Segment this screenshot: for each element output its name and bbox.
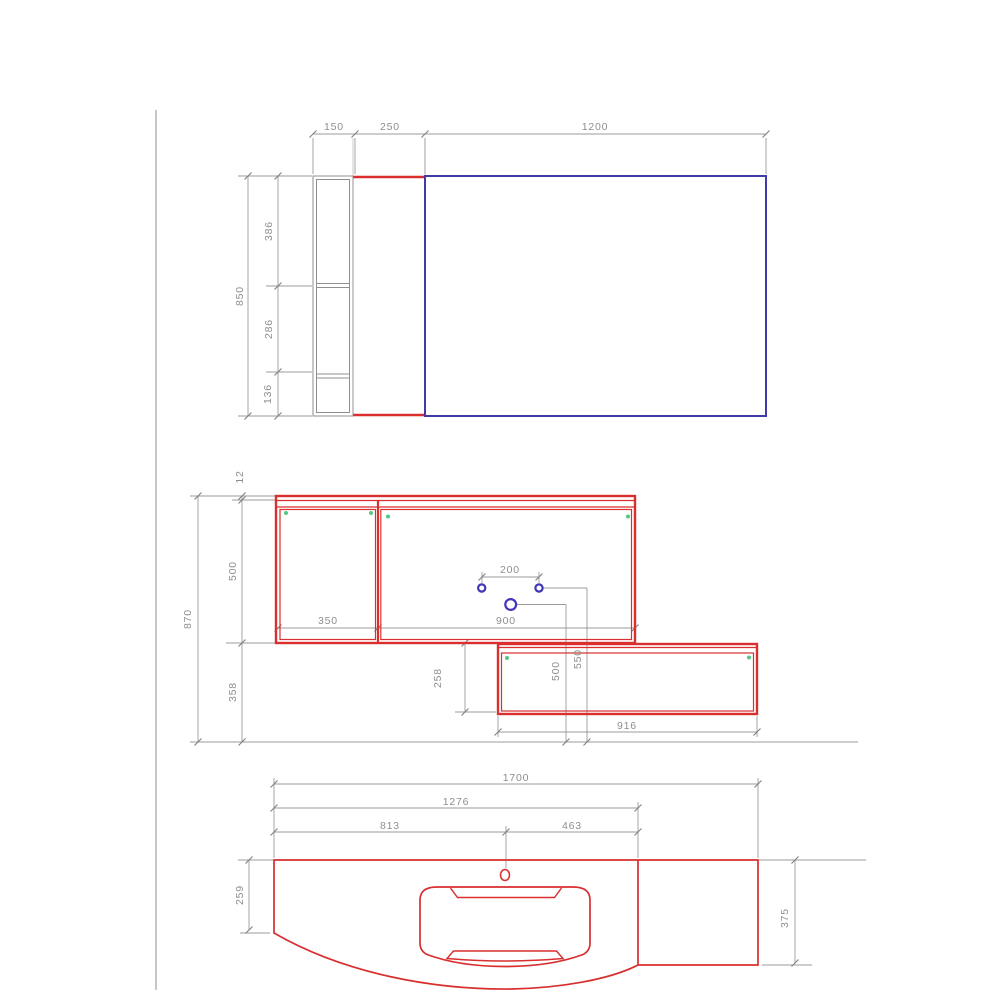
- tap-hole-small-right: [535, 584, 542, 591]
- front-lower-cabinet-outline: [498, 644, 757, 714]
- dim-label-258: 258: [432, 668, 444, 688]
- hinge-dot: [369, 511, 373, 515]
- plan-mid-panel-extensions: [353, 138, 425, 416]
- dim-label-358: 358: [227, 682, 239, 702]
- countertop-outline: [274, 860, 758, 989]
- front-lower-cabinet: [498, 644, 757, 714]
- plan-side-cabinet-outline: [313, 176, 353, 416]
- basin-outline: [420, 887, 590, 967]
- dim-label-1276: 1276: [443, 796, 470, 808]
- dim-label-250: 250: [380, 121, 400, 133]
- basin-top-slot: [451, 888, 562, 898]
- plan-mid-panel-edges: [353, 177, 425, 415]
- cad-sheet: 150 250 1200 850 386 286 136: [0, 0, 990, 990]
- dim-label-813: 813: [380, 820, 400, 832]
- dim-label-200: 200: [500, 564, 520, 576]
- tap-hole-large: [505, 599, 516, 610]
- basin: [420, 887, 590, 967]
- dim-label-500-left: 500: [227, 561, 239, 581]
- counter-dimension-lines: [238, 778, 866, 965]
- tap-hole-small-left: [478, 584, 485, 591]
- blue-panel-outline: [425, 176, 766, 416]
- counter-view: 1700 1276 813 463 259 375: [234, 772, 866, 989]
- hinge-dot: [284, 511, 288, 515]
- hinge-dot: [505, 656, 509, 660]
- plan-shelf-lines: [317, 284, 350, 379]
- hinge-dot: [747, 656, 751, 660]
- dim-label-386: 386: [263, 221, 275, 241]
- dim-label-1200: 1200: [582, 121, 609, 133]
- dim-label-500-tap: 500: [550, 661, 562, 681]
- dim-label-550-tap: 550: [572, 649, 584, 669]
- dim-label-286: 286: [263, 319, 275, 339]
- dim-label-350: 350: [318, 615, 338, 627]
- front-view: 12 500 358 870 350 900 200 500 550 258 9…: [182, 470, 858, 745]
- counter-tap-hole: [501, 870, 510, 881]
- cad-drawing: 150 250 1200 850 386 286 136: [0, 0, 990, 990]
- dim-label-136: 136: [262, 384, 274, 404]
- dim-label-870: 870: [182, 609, 194, 629]
- front-lower-cabinet-inner: [502, 653, 754, 711]
- front-dimension-ticks: [195, 493, 761, 746]
- plan-dimension-ticks: [245, 131, 770, 420]
- dim-label-375: 375: [779, 908, 791, 928]
- countertop: [274, 860, 758, 989]
- tap-holes: [478, 584, 543, 609]
- dim-label-900: 900: [496, 615, 516, 627]
- dim-label-150: 150: [324, 121, 344, 133]
- dim-label-12: 12: [234, 470, 246, 483]
- hinge-dots: [284, 511, 751, 660]
- front-upper-cabinet-top-strip: [276, 501, 635, 508]
- dim-label-916: 916: [617, 720, 637, 732]
- plan-view: 150 250 1200 850 386 286 136: [234, 121, 770, 420]
- dim-label-1700: 1700: [503, 772, 530, 784]
- dim-label-463: 463: [562, 820, 582, 832]
- dim-label-259: 259: [234, 885, 246, 905]
- hinge-dot: [386, 515, 390, 519]
- hinge-dot: [626, 515, 630, 519]
- basin-bottom-slot: [447, 951, 563, 961]
- plan-side-cabinet: [313, 176, 353, 416]
- dim-label-850: 850: [234, 286, 246, 306]
